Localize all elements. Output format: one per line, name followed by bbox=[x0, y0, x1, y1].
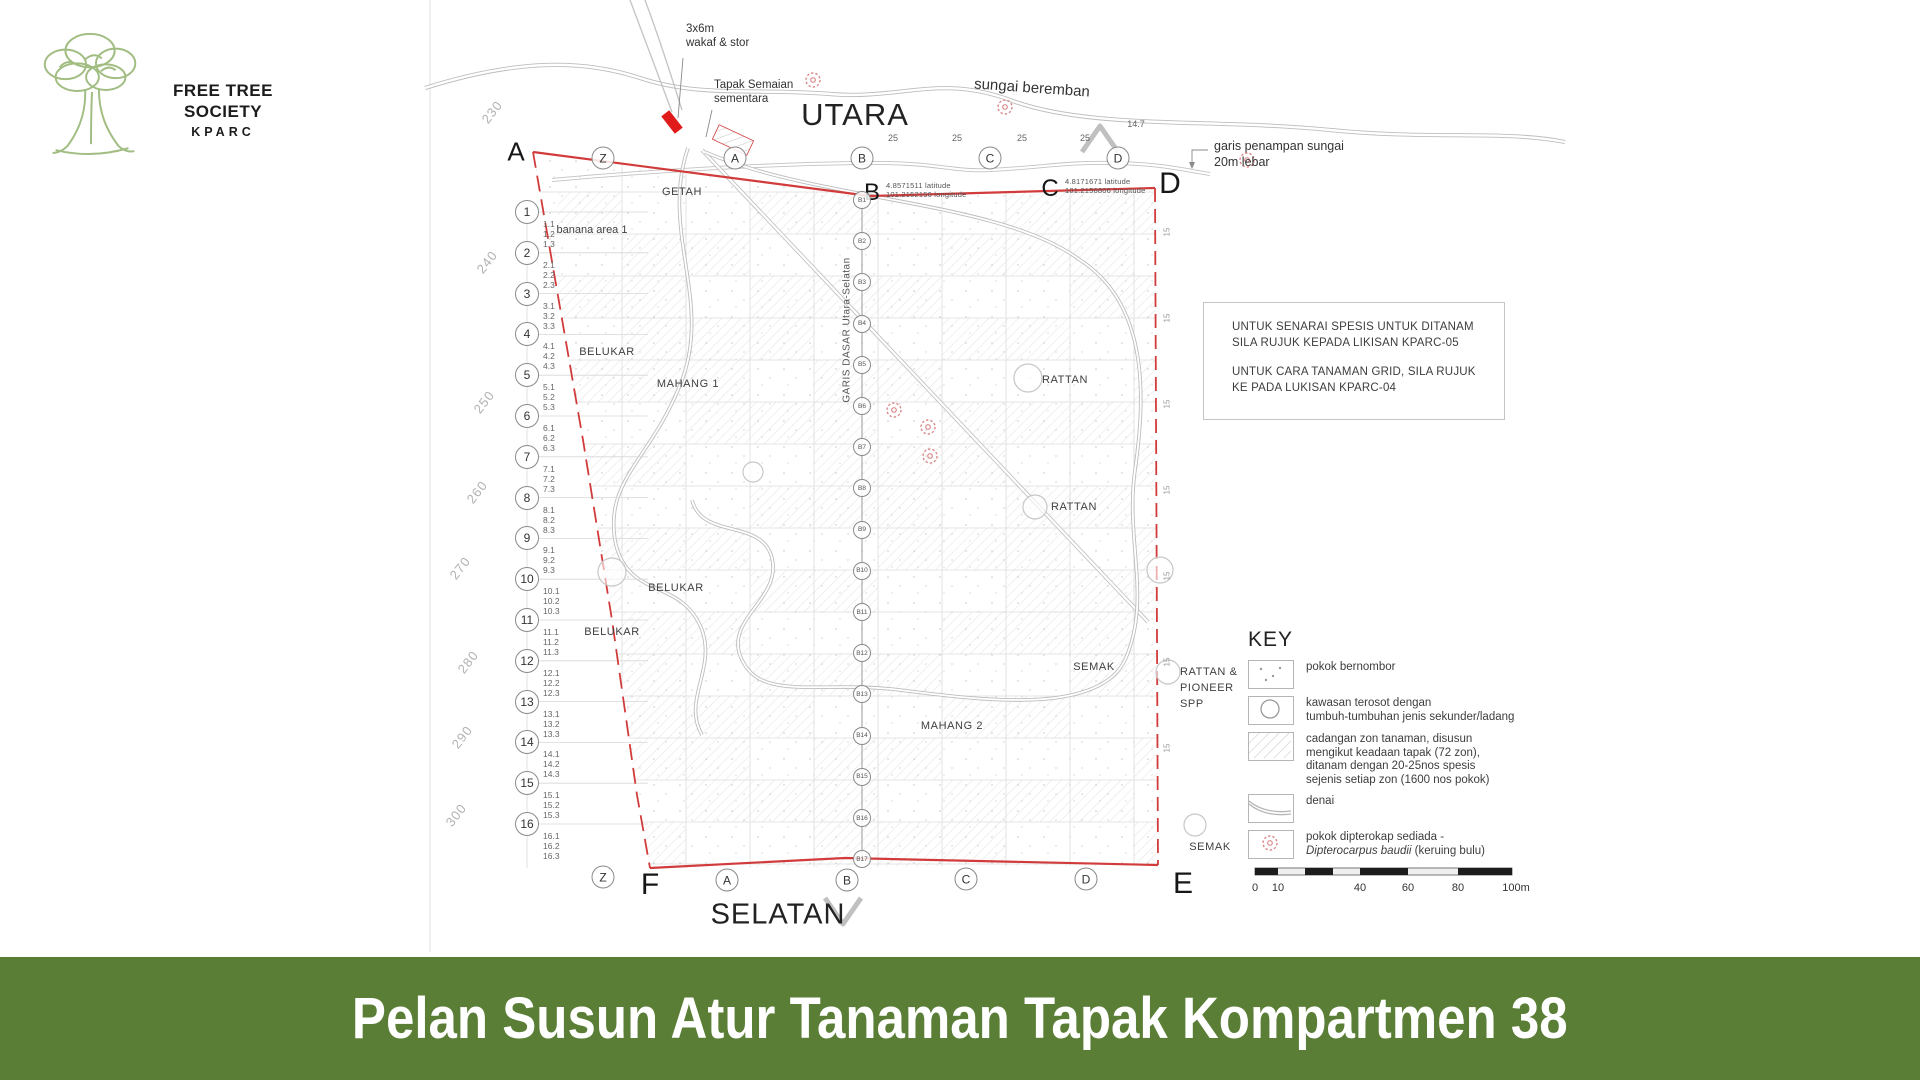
legend-title: KEY bbox=[1248, 628, 1548, 652]
row-subnumbers-14: 14.114.214.3 bbox=[543, 749, 560, 779]
row-subnumbers-11: 11.111.211.3 bbox=[543, 627, 559, 657]
row-number-8: 8 bbox=[515, 486, 539, 510]
row-subnumbers-5: 5.15.25.3 bbox=[543, 382, 555, 412]
corner-letter-f: F bbox=[641, 868, 659, 902]
baseline-marker-B7: B7 bbox=[853, 438, 871, 456]
trail-swatch-icon bbox=[1248, 794, 1294, 823]
legend-item-label: pokok bernombor bbox=[1306, 660, 1396, 689]
row-subnumbers-4: 4.14.24.3 bbox=[543, 341, 555, 371]
semaian-annotation: Tapak Semaian sementara bbox=[714, 78, 793, 106]
legend-item-label: denai bbox=[1306, 794, 1334, 823]
region-label-getah: GETAH bbox=[662, 186, 702, 198]
region-label-semak: SEMAK bbox=[1189, 841, 1231, 853]
right-tick-15: 15 bbox=[1163, 744, 1172, 753]
legend-item-circle: kawasan terosot dengantumbuh-tumbuhan je… bbox=[1248, 696, 1548, 725]
grid-letter-bottom-A: A bbox=[716, 869, 739, 892]
row-number-11: 11 bbox=[515, 608, 539, 632]
survey-letter-c: C bbox=[1041, 175, 1058, 203]
scale-tick-80: 80 bbox=[1452, 882, 1464, 894]
baseline-marker-B9: B9 bbox=[853, 521, 871, 539]
grid-letter-top-C: C bbox=[979, 147, 1002, 170]
site-plan: UTARA SELATAN sungai beremban 3x6m wakaf… bbox=[0, 0, 1920, 955]
scale-tick-10: 10 bbox=[1272, 882, 1284, 894]
legend-item-dots: pokok bernombor bbox=[1248, 660, 1548, 689]
row-subnumbers-12: 12.112.212.3 bbox=[543, 668, 560, 698]
row-number-4: 4 bbox=[515, 322, 539, 346]
grid-letter-bottom-B: B bbox=[836, 869, 859, 892]
scale-tick-0: 0 bbox=[1252, 882, 1258, 894]
baseline-marker-B14: B14 bbox=[853, 727, 871, 745]
wakaf-stor-building bbox=[661, 110, 682, 133]
legend-item-flower: pokok dipterokap sediada -Dipterocarpus … bbox=[1248, 830, 1548, 859]
row-number-6: 6 bbox=[515, 404, 539, 428]
row-number-2: 2 bbox=[515, 241, 539, 265]
legend-item-label: pokok dipterokap sediada -Dipterocarpus … bbox=[1306, 830, 1485, 859]
wakaf-annotation: 3x6m wakaf & stor bbox=[686, 22, 749, 50]
baseline-marker-B15: B15 bbox=[853, 768, 871, 786]
grid-letter-bottom-Z: Z bbox=[592, 866, 615, 889]
row-subnumbers-1: 1.11.21.3 bbox=[543, 219, 555, 249]
row-subnumbers-8: 8.18.28.3 bbox=[543, 505, 555, 535]
region-label-belukar: BELUKAR bbox=[584, 626, 640, 638]
row-number-1: 1 bbox=[515, 200, 539, 224]
row-number-14: 14 bbox=[515, 730, 539, 754]
baseline-marker-B16: B16 bbox=[853, 809, 871, 827]
corner-letter-e: E bbox=[1173, 867, 1193, 901]
corner-letter-d: D bbox=[1159, 167, 1181, 201]
slide: FREE TREE SOCIETY KPARC bbox=[0, 0, 1920, 1080]
row-number-12: 12 bbox=[515, 649, 539, 673]
baseline-marker-B1: B1 bbox=[853, 191, 871, 209]
scale-tick-60: 60 bbox=[1402, 882, 1414, 894]
row-number-5: 5 bbox=[515, 363, 539, 387]
top-distance: 25 bbox=[1080, 133, 1090, 143]
region-label-rattan: RATTAN bbox=[1051, 501, 1097, 513]
baseline-marker-B17: B17 bbox=[853, 850, 871, 868]
legend-item-trail: denai bbox=[1248, 794, 1548, 823]
right-tick-15: 15 bbox=[1163, 228, 1172, 237]
baseline-marker-B6: B6 bbox=[853, 397, 871, 415]
compass-north-label: UTARA bbox=[801, 97, 909, 133]
baseline-marker-B2: B2 bbox=[853, 232, 871, 250]
right-tick-15: 15 bbox=[1163, 400, 1172, 409]
baseline-marker-B5: B5 bbox=[853, 356, 871, 374]
baseline-marker-B11: B11 bbox=[853, 603, 871, 621]
row-number-3: 3 bbox=[515, 282, 539, 306]
scale-tick-40: 40 bbox=[1354, 882, 1366, 894]
row-number-10: 10 bbox=[515, 567, 539, 591]
region-label-rattan: RATTAN bbox=[1042, 374, 1088, 386]
row-number-7: 7 bbox=[515, 445, 539, 469]
baseline-marker-B4: B4 bbox=[853, 315, 871, 333]
region-label-mahang-1: MAHANG 1 bbox=[657, 378, 719, 390]
row-subnumbers-16: 16.116.216.3 bbox=[543, 831, 560, 861]
survey-coords-b: 4.8571511 latitude 101.2152156 longitude bbox=[886, 181, 967, 199]
survey-coords-c: 4.8171671 latitude 101.2156806 longitude bbox=[1065, 177, 1146, 195]
legend-item-label: cadangan zon tanaman, disusunmengikut ke… bbox=[1306, 732, 1489, 787]
region-label-banana-area-1: banana area 1 bbox=[557, 224, 628, 236]
baseline-marker-B13: B13 bbox=[853, 685, 871, 703]
scale-tick-100m: 100m bbox=[1502, 882, 1530, 894]
buffer-annotation: garis penampan sungai 20m lebar bbox=[1214, 138, 1344, 170]
right-tick-15: 15 bbox=[1163, 314, 1172, 323]
slide-title: Pelan Susun Atur Tanaman Tapak Kompartme… bbox=[352, 985, 1568, 1052]
region-label-semak: SEMAK bbox=[1073, 661, 1115, 673]
row-subnumbers-10: 10.110.210.3 bbox=[543, 586, 560, 616]
circle-swatch-icon bbox=[1248, 696, 1294, 725]
region-label-belukar: BELUKAR bbox=[648, 582, 704, 594]
grid-letter-bottom-C: C bbox=[955, 868, 978, 891]
row-subnumbers-9: 9.19.29.3 bbox=[543, 545, 555, 575]
rattan-pioneer-label: RATTAN &PIONEERSPP bbox=[1180, 664, 1238, 712]
row-subnumbers-7: 7.17.27.3 bbox=[543, 464, 555, 494]
row-number-9: 9 bbox=[515, 526, 539, 550]
region-label-belukar: BELUKAR bbox=[579, 346, 635, 358]
row-subnumbers-2: 2.12.22.3 bbox=[543, 260, 555, 290]
row-subnumbers-13: 13.113.213.3 bbox=[543, 709, 560, 739]
grid-letter-bottom-D: D bbox=[1075, 868, 1098, 891]
top-distance: 25 bbox=[1017, 133, 1027, 143]
compass-south-label: SELATAN bbox=[711, 899, 846, 932]
reference-notes: UNTUK SENARAI SPESIS UNTUK DITANAM SILA … bbox=[1203, 302, 1505, 420]
hatch-swatch-icon bbox=[1248, 732, 1294, 761]
flower-swatch-icon bbox=[1248, 830, 1294, 859]
row-subnumbers-6: 6.16.26.3 bbox=[543, 423, 555, 453]
row-number-16: 16 bbox=[515, 812, 539, 836]
top-distance-end: 14.7 bbox=[1127, 119, 1145, 129]
baseline-marker-B3: B3 bbox=[853, 273, 871, 291]
right-tick-15: 15 bbox=[1163, 572, 1172, 581]
grid-letter-top-A: A bbox=[724, 147, 747, 170]
baseline-label: GARIS DASAR Utara-Selatan bbox=[842, 257, 853, 402]
right-tick-15: 15 bbox=[1163, 658, 1172, 667]
legend-item-hatch: cadangan zon tanaman, disusunmengikut ke… bbox=[1248, 732, 1548, 787]
baseline-marker-B10: B10 bbox=[853, 562, 871, 580]
top-distance: 25 bbox=[952, 133, 962, 143]
plan-linework bbox=[0, 0, 1920, 955]
row-subnumbers-3: 3.13.23.3 bbox=[543, 301, 555, 331]
legend-item-label: kawasan terosot dengantumbuh-tumbuhan je… bbox=[1306, 696, 1514, 725]
grid-letter-top-B: B bbox=[851, 147, 874, 170]
grid-letter-top-Z: Z bbox=[592, 147, 615, 170]
top-distance: 25 bbox=[888, 133, 898, 143]
scale-bar bbox=[1255, 868, 1512, 875]
corner-letter-a: A bbox=[507, 137, 524, 168]
row-number-15: 15 bbox=[515, 771, 539, 795]
row-subnumbers-15: 15.115.215.3 bbox=[543, 790, 560, 820]
baseline-marker-B12: B12 bbox=[853, 644, 871, 662]
dots-swatch-icon bbox=[1248, 660, 1294, 689]
grid-letter-top-D: D bbox=[1107, 147, 1130, 170]
title-banner: Pelan Susun Atur Tanaman Tapak Kompartme… bbox=[0, 957, 1920, 1080]
baseline-marker-B8: B8 bbox=[853, 479, 871, 497]
row-number-13: 13 bbox=[515, 690, 539, 714]
region-label-mahang-2: MAHANG 2 bbox=[921, 720, 983, 732]
legend: KEY pokok bernomborkawasan terosot denga… bbox=[1248, 628, 1548, 866]
right-tick-15: 15 bbox=[1163, 486, 1172, 495]
